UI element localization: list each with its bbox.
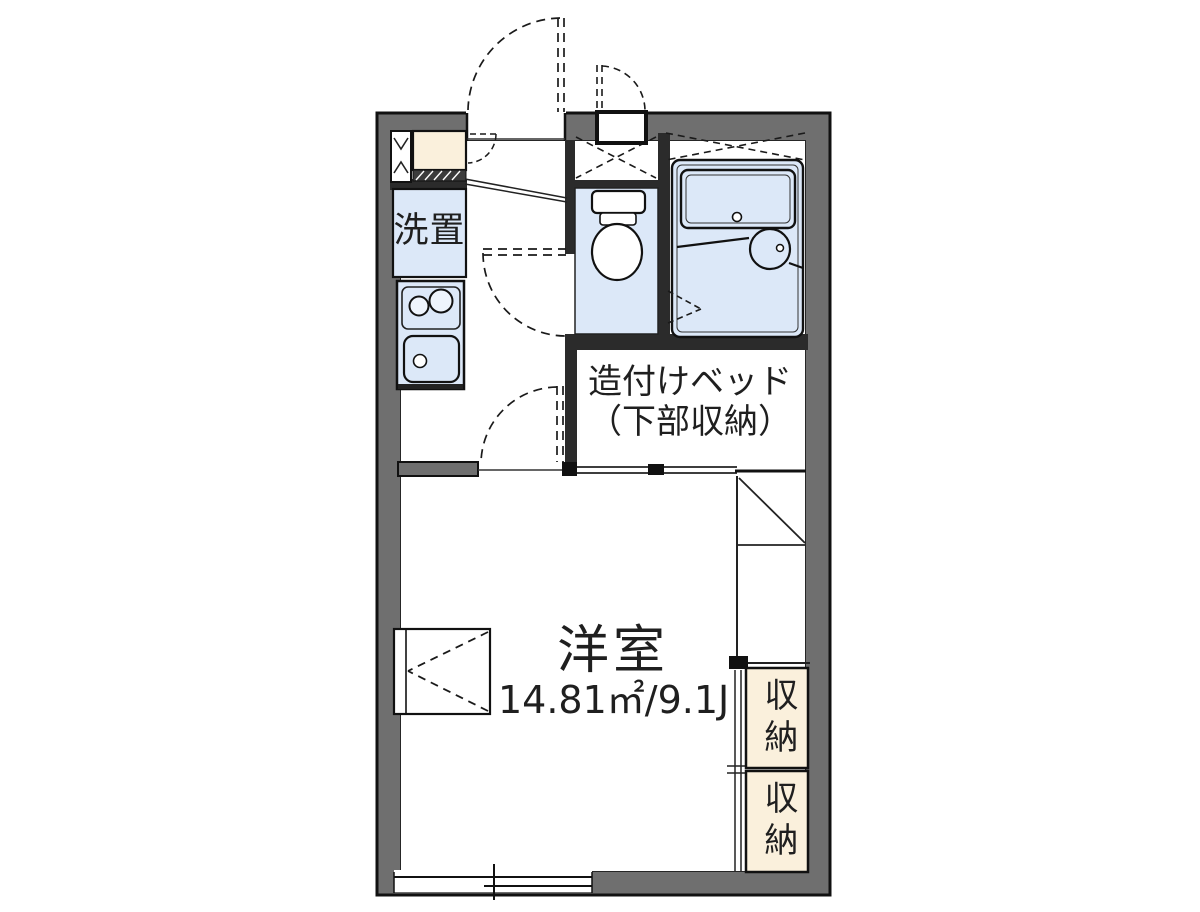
floor-plan-drawing: [0, 0, 1200, 912]
meter-box-door-swing: [597, 65, 645, 112]
bathtub: [681, 170, 795, 228]
entrance-door-swing: [468, 18, 564, 112]
stove-burner-left: [410, 297, 429, 316]
bathroom: [668, 160, 803, 337]
kitchen-unit: [397, 281, 464, 389]
built-in-bed-label: 造付けベッド: [565, 365, 815, 401]
sink-drain: [414, 355, 427, 368]
western-room-area: 14.81㎡/9.1J: [498, 681, 728, 721]
left-window: [394, 629, 490, 714]
entrance-opening: [466, 110, 566, 141]
western-room-label: 洋室: [513, 624, 713, 679]
utility-shaft: [391, 131, 411, 182]
washbasin: [750, 229, 790, 269]
closet-upper-label: 収納: [746, 670, 808, 768]
entry-storage-box: [413, 131, 466, 181]
laundry-label: 洗置: [393, 213, 466, 250]
closet-lower-label: 収納: [746, 773, 808, 871]
stove-burner-right: [430, 290, 453, 313]
toilet-fixture: [592, 191, 645, 280]
meter-box: [597, 112, 646, 143]
floor-plan-canvas: 洗置 造付けベッド （下部収納） 洋室 14.81㎡/9.1J 収納 収納: [0, 0, 1200, 912]
bathtub-drain: [733, 213, 742, 222]
built-in-bed-sublabel: （下部収納）: [565, 405, 815, 441]
